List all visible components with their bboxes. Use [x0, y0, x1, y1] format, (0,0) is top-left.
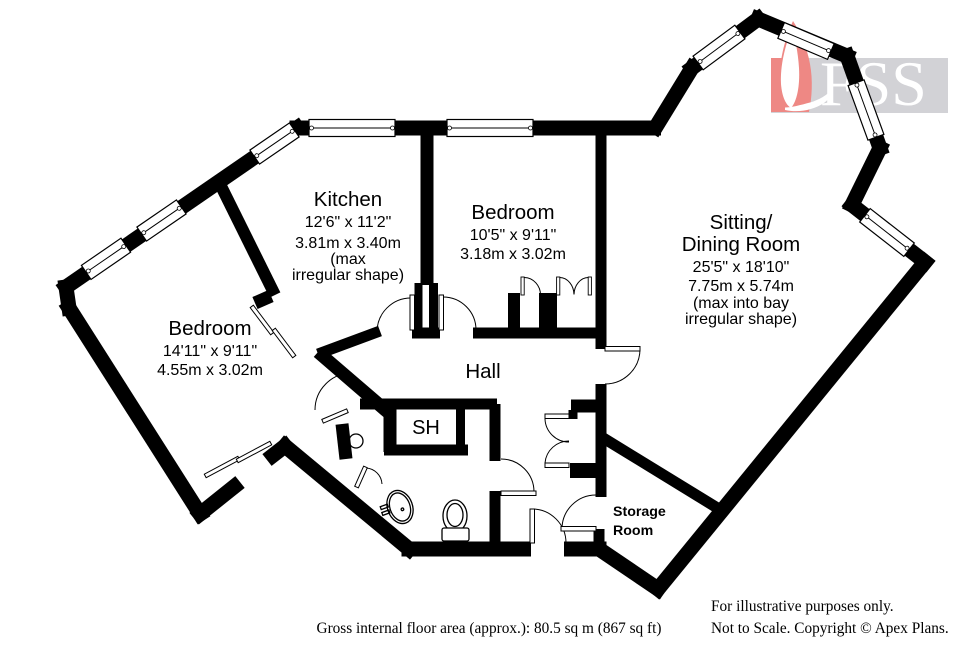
svg-text:14'11" x 9'11": 14'11" x 9'11" — [163, 343, 257, 360]
svg-text:Bedroom: Bedroom — [471, 201, 554, 224]
svg-text:12'6" x 11'2": 12'6" x 11'2" — [305, 214, 392, 231]
svg-text:Dining Room: Dining Room — [682, 233, 801, 256]
svg-text:For illustrative purposes only: For illustrative purposes only. — [711, 598, 894, 615]
svg-text:Not to Scale. Copyright © Apex: Not to Scale. Copyright © Apex Plans. — [711, 620, 949, 637]
svg-text:SH: SH — [412, 417, 440, 439]
svg-text:Sitting/: Sitting/ — [710, 211, 773, 234]
svg-text:Gross internal floor area (app: Gross internal floor area (approx.): 80.… — [317, 620, 662, 637]
svg-text:Room: Room — [613, 523, 653, 539]
svg-text:10'5" x 9'11": 10'5" x 9'11" — [470, 227, 557, 244]
svg-text:irregular shape): irregular shape) — [292, 267, 404, 284]
svg-text:25'5" x 18'10": 25'5" x 18'10" — [693, 259, 790, 276]
svg-text:(max into bay: (max into bay — [693, 295, 789, 312]
svg-text:Kitchen: Kitchen — [314, 188, 382, 211]
svg-text:Storage: Storage — [613, 504, 666, 520]
svg-text:(max: (max — [330, 251, 366, 268]
svg-text:3.18m x 3.02m: 3.18m x 3.02m — [460, 246, 566, 263]
svg-text:irregular shape): irregular shape) — [685, 311, 797, 328]
svg-text:3.81m x 3.40m: 3.81m x 3.40m — [295, 235, 401, 252]
svg-text:Hall: Hall — [465, 360, 500, 383]
svg-text:7.75m x 5.74m: 7.75m x 5.74m — [688, 278, 794, 295]
svg-text:4.55m x 3.02m: 4.55m x 3.02m — [157, 362, 263, 379]
svg-text:Bedroom: Bedroom — [168, 317, 251, 340]
